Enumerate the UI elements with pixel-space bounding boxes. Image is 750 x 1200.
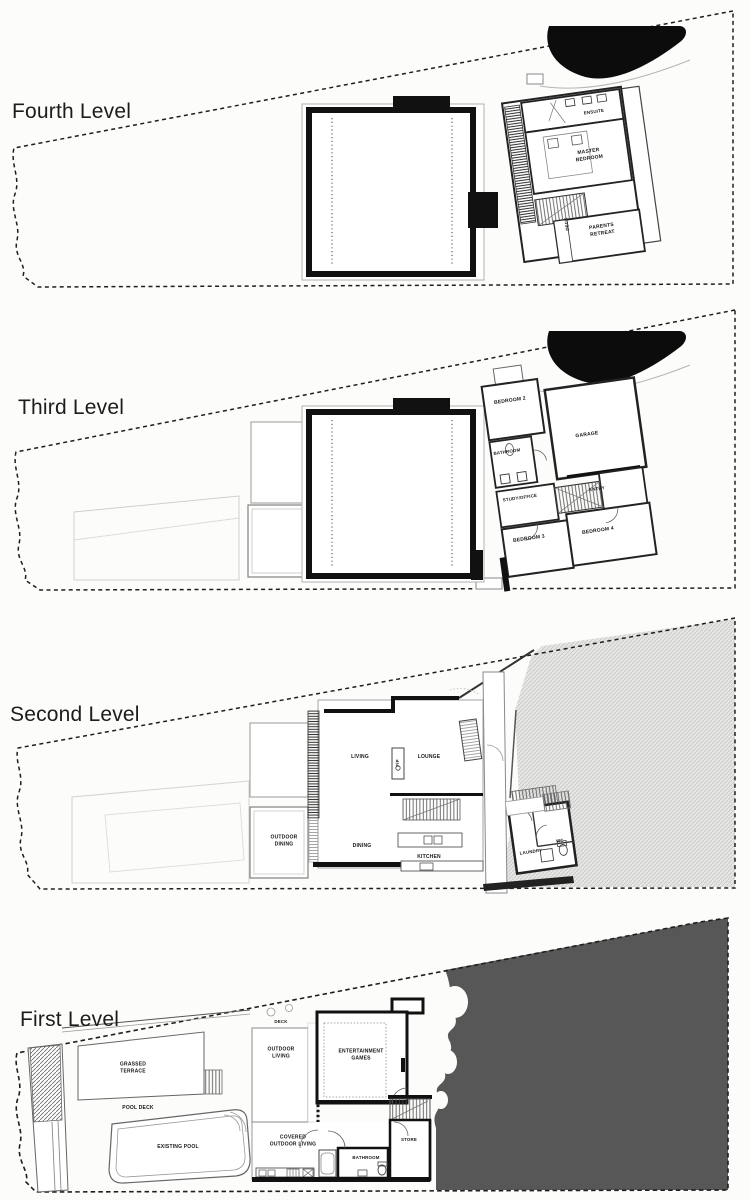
room-label-grassed-terrace: GRASSED TERRACE bbox=[118, 1062, 148, 1075]
room-label-store: STORE bbox=[397, 1137, 421, 1143]
tree-blob bbox=[547, 26, 686, 78]
room-label-pool-deck: POOL DECK bbox=[118, 1105, 158, 1112]
room-label-deck-1: DECK bbox=[269, 1019, 293, 1025]
hall-bridge bbox=[483, 672, 507, 893]
room-label-lounge: LOUNGE bbox=[413, 754, 445, 761]
roof-plan bbox=[302, 398, 484, 582]
floor-plans-page: Fourth Level Third Level Second Level Fi… bbox=[0, 0, 750, 1200]
level-title-first: First Level bbox=[20, 1008, 119, 1032]
dark-ground-area bbox=[434, 918, 728, 1190]
level-third-plan bbox=[15, 310, 735, 592]
roof-plan bbox=[302, 96, 498, 280]
room-label-dining: DINING bbox=[347, 843, 377, 850]
level-title-third: Third Level bbox=[18, 396, 124, 420]
level-fourth-plan bbox=[13, 11, 733, 287]
level-second-plan bbox=[17, 618, 735, 893]
tree-blob bbox=[547, 331, 686, 383]
room-label-outdoor-dining: OUTDOOR DINING bbox=[270, 835, 298, 848]
retaining-stairs bbox=[28, 1044, 68, 1192]
outdoor-kitchen-bench bbox=[256, 1168, 314, 1177]
bedroom-level-wing bbox=[473, 350, 660, 592]
room-label-fireplace: F/P bbox=[395, 753, 401, 773]
level-title-second: Second Level bbox=[10, 703, 140, 727]
room-label-outdoor-living: OUTDOOR LIVING bbox=[267, 1047, 295, 1060]
room-label-bathroom-1: BATHROOM bbox=[349, 1155, 383, 1161]
room-label-covered-outdoor-living: COVERED OUTDOOR LIVING bbox=[268, 1135, 318, 1148]
room-label-kitchen: KITCHEN bbox=[412, 854, 446, 861]
level-title-fourth: Fourth Level bbox=[12, 100, 131, 124]
room-label-entertainment-games: ENTERTAINMENT GAMES bbox=[338, 1049, 384, 1062]
room-label-existing-pool: EXISTING POOL bbox=[155, 1144, 201, 1151]
room-label-living: LIVING bbox=[345, 754, 375, 761]
